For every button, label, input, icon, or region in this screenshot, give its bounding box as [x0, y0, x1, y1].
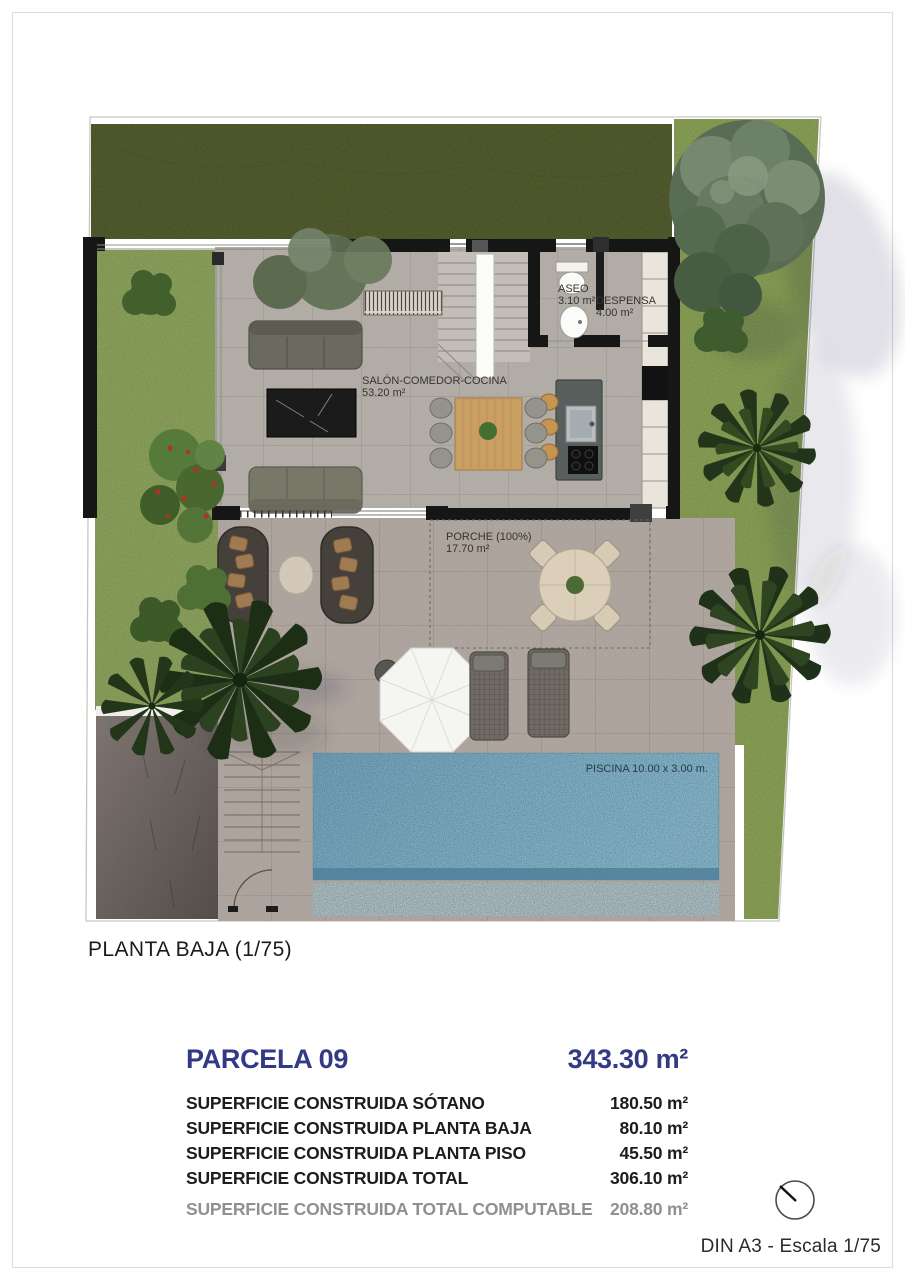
summary-row: SUPERFICIE CONSTRUIDA TOTAL 306.10 m² — [186, 1166, 688, 1191]
row-value: 45.50 m² — [620, 1141, 688, 1166]
piscina-label: PISCINA 10.00 x 3.00 m. — [586, 763, 708, 775]
despensa-area: 4.00 m² — [596, 307, 634, 319]
parcel-area: 343.30 m² — [568, 1044, 688, 1075]
dining-table — [430, 398, 547, 470]
pool — [313, 753, 719, 916]
summary-row-computable: SUPERFICIE CONSTRUIDA TOTAL COMPUTABLE 2… — [186, 1197, 688, 1222]
plan-title: PLANTA BAJA (1/75) — [88, 938, 292, 962]
floor-plan-sheet: { "plan": { "title": "PLANTA BAJA (1/75)… — [0, 0, 905, 1280]
outdoor-dining-set — [528, 539, 622, 633]
outdoor-sofa-right — [321, 527, 373, 623]
row-label: SUPERFICIE CONSTRUIDA TOTAL COMPUTABLE — [186, 1197, 593, 1222]
appliance — [642, 366, 668, 400]
row-label: SUPERFICIE CONSTRUIDA SÓTANO — [186, 1091, 485, 1116]
kitchen-island — [556, 380, 602, 480]
porche-label: PORCHE (100%) — [446, 531, 532, 543]
sheet-scale-note: DIN A3 - Escala 1/75 — [701, 1236, 881, 1258]
aseo-area: 3.10 m² — [558, 295, 596, 307]
floor-plan-canvas: ASEO 3.10 m² DESPENSA 4.00 m² SALÓN-COME… — [0, 0, 905, 960]
sofa-top — [249, 321, 362, 369]
salon-label: SALÓN-COMEDOR-COCINA — [362, 374, 508, 387]
summary-row: SUPERFICIE CONSTRUIDA PLANTA BAJA 80.10 … — [186, 1116, 688, 1141]
salon-area: 53.20 m² — [362, 387, 406, 399]
cooktop — [568, 446, 598, 474]
row-value: 80.10 m² — [620, 1116, 688, 1141]
row-value: 180.50 m² — [610, 1091, 688, 1116]
kitchen-counter — [642, 252, 668, 508]
row-label: SUPERFICIE CONSTRUIDA PLANTA PISO — [186, 1141, 526, 1166]
sofa-bottom — [249, 467, 362, 513]
porche-area: 17.70 m² — [446, 543, 490, 555]
row-label: SUPERFICIE CONSTRUIDA TOTAL — [186, 1166, 468, 1191]
centerpiece-plant — [566, 576, 584, 594]
summary-row: SUPERFICIE CONSTRUIDA PLANTA PISO 45.50 … — [186, 1141, 688, 1166]
despensa-label: DESPENSA — [596, 295, 657, 307]
washbasin — [560, 306, 588, 338]
vent-grill — [364, 291, 442, 315]
row-label: SUPERFICIE CONSTRUIDA PLANTA BAJA — [186, 1116, 532, 1141]
coffee-table — [267, 389, 356, 437]
summary-row: SUPERFICIE CONSTRUIDA SÓTANO 180.50 m² — [186, 1091, 688, 1116]
row-value: 306.10 m² — [610, 1166, 688, 1191]
parcel-header: PARCELA 09 343.30 m² — [186, 1044, 688, 1075]
parcel-title: PARCELA 09 — [186, 1044, 348, 1075]
side-table — [279, 556, 313, 594]
aseo-label: ASEO — [558, 283, 589, 295]
surface-summary: PARCELA 09 343.30 m² SUPERFICIE CONSTRUI… — [186, 1044, 688, 1222]
row-value: 208.80 m² — [610, 1197, 688, 1222]
table-plant — [479, 422, 497, 440]
north-compass-icon — [771, 1176, 819, 1224]
